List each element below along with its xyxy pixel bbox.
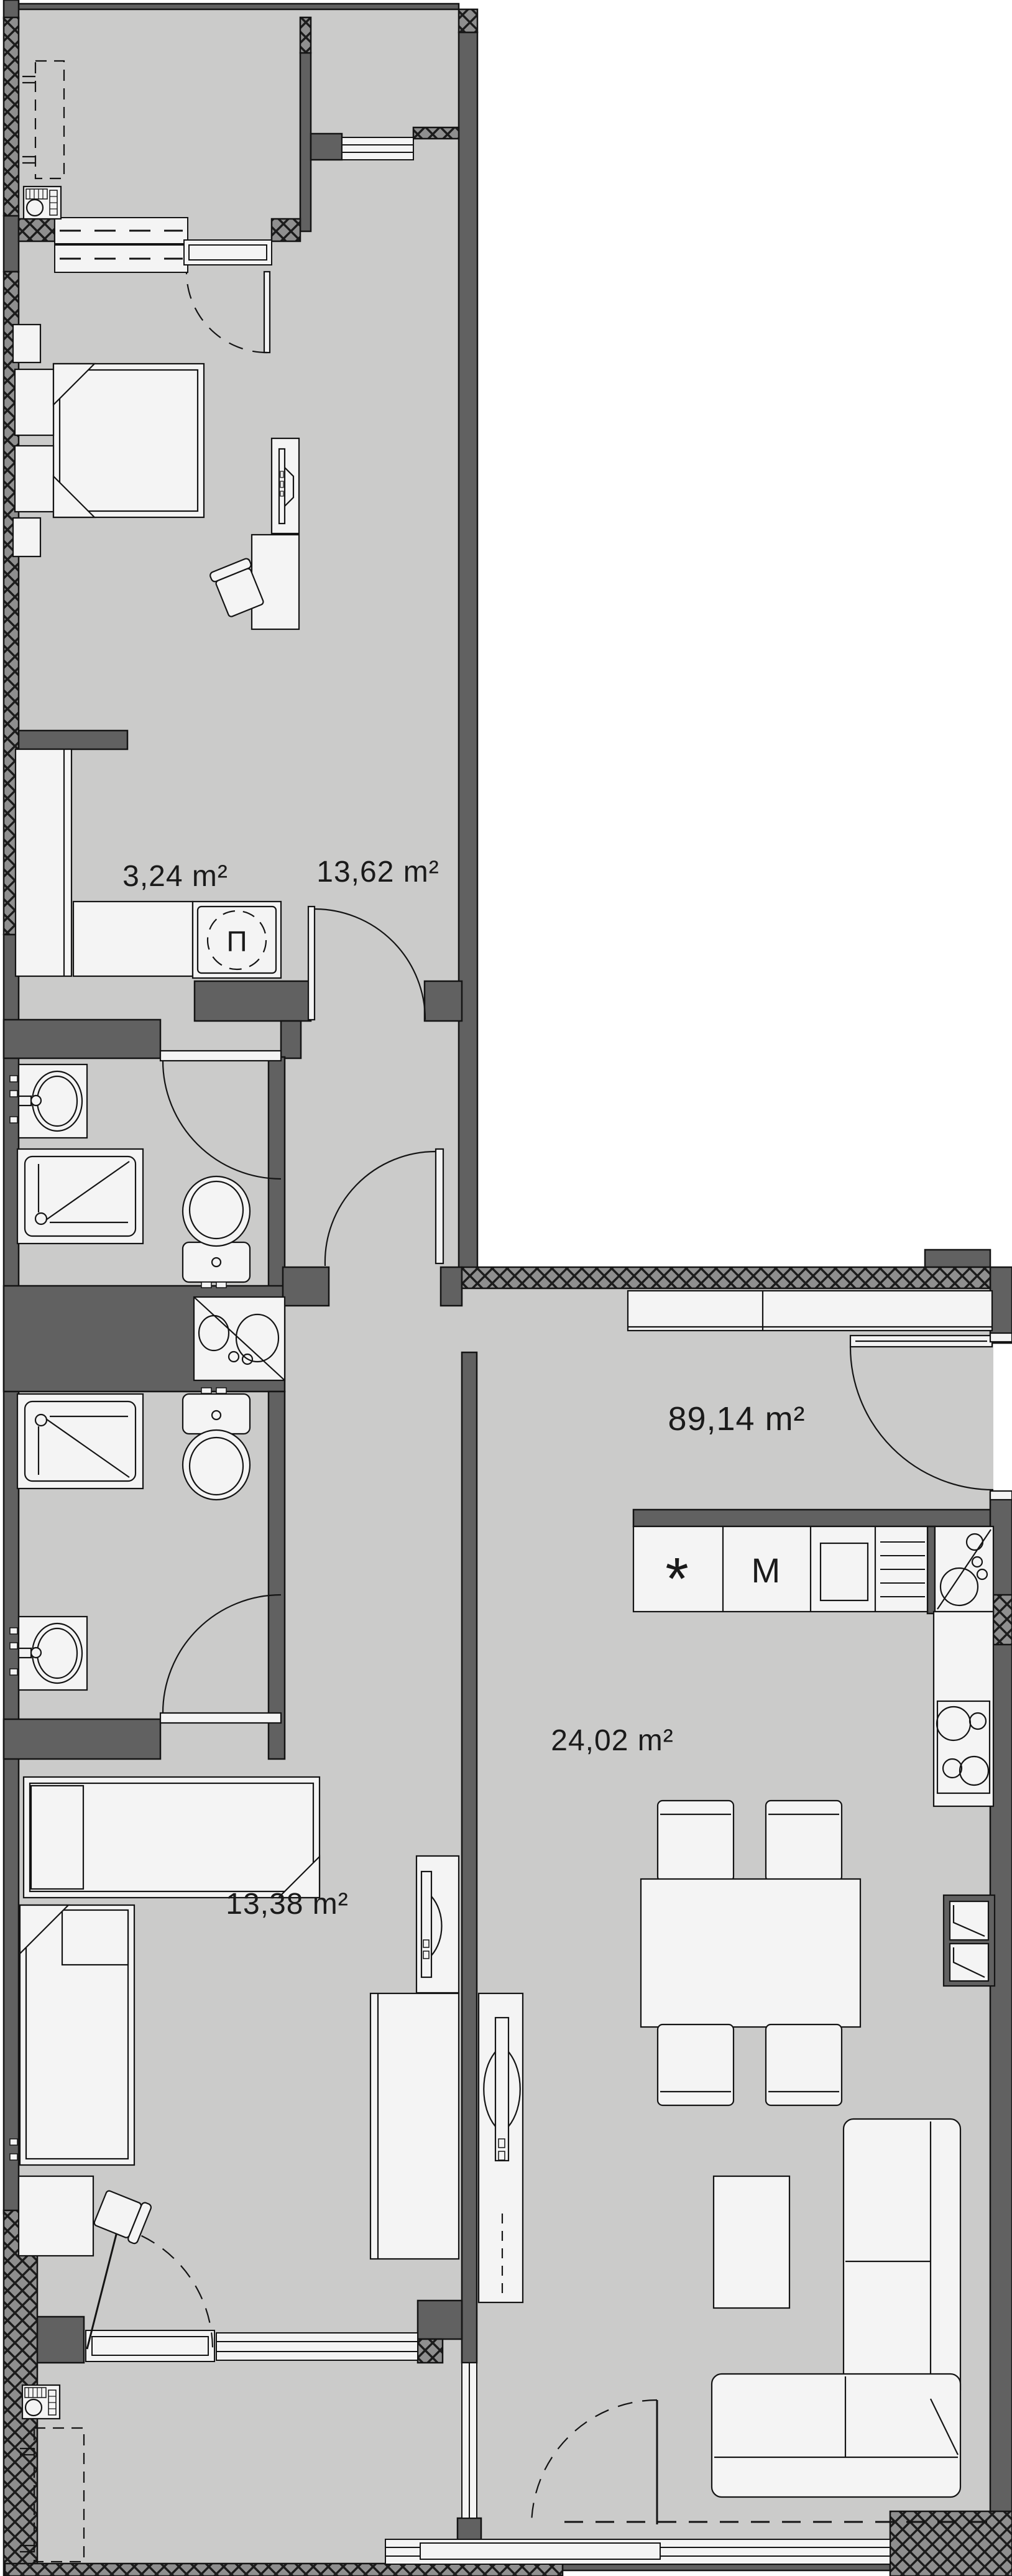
bathroom1-toilet (183, 1176, 250, 1288)
dining-chair (658, 2024, 734, 2105)
ac-unit (24, 187, 61, 219)
nightstand (13, 325, 40, 362)
dining-chair (658, 1801, 734, 1881)
fridge-symbol: * (665, 1546, 688, 1612)
area-label-closet: 3,24 m² (122, 860, 228, 893)
tv-stand-living (479, 1993, 523, 2302)
washing-machine-symbol: П (226, 925, 247, 958)
shared-vanity (194, 1297, 285, 1380)
dresser (370, 1993, 459, 2259)
kitchen-side-counter (934, 1612, 993, 1806)
living-room-window (385, 2539, 890, 2564)
area-label-bedroom1: 13,62 m² (316, 856, 439, 889)
ac-unit (22, 2385, 60, 2419)
bathroom2-toilet (183, 1388, 250, 1500)
tv-unit (272, 438, 299, 533)
area-label-kitchen: 24,02 m² (551, 1724, 673, 1757)
dining-chair (766, 2024, 842, 2105)
coffee-table (714, 2176, 789, 2308)
desk (19, 2176, 93, 2256)
bedroom2-balcony-door-frame (86, 2330, 214, 2361)
dining-chair (766, 1801, 842, 1881)
floor-plan-canvas: 3,24 m² 13,62 m² 89,14 m² 24,02 m² 13,38… (0, 0, 1012, 2576)
bathroom1-sink (10, 1064, 87, 1138)
wardrobe-cabinet (16, 749, 71, 976)
entry-wardrobe (628, 1291, 992, 1331)
area-label-total: 89,14 m² (668, 1400, 805, 1438)
oven-symbol: M (752, 1551, 781, 1590)
laundry-counter (73, 902, 193, 976)
single-bed-horizontal (24, 1777, 320, 1898)
dining-table (641, 1879, 860, 2027)
bathroom2-sink (10, 1617, 87, 1690)
bathroom2-shower (17, 1394, 143, 1489)
nook-window (342, 137, 413, 160)
balcony2-glass-partition (462, 2363, 477, 2518)
desk (252, 535, 299, 629)
radiator-unit (944, 1895, 995, 1986)
single-bed-vertical (20, 1905, 134, 2165)
kitchen-sink (935, 1526, 993, 1612)
bathroom1-shower (17, 1149, 143, 1244)
nightstand (13, 518, 40, 556)
area-label-bedroom2: 13,38 m² (226, 1888, 348, 1921)
bedroom2-window (216, 2333, 418, 2360)
tv-panel (416, 1856, 459, 1993)
